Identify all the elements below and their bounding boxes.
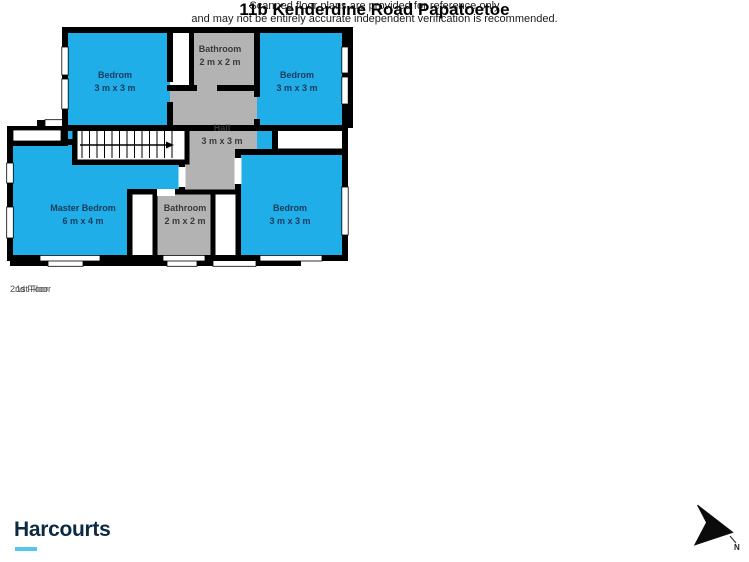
svg-text:3 m x 3 m: 3 m x 3 m (276, 83, 317, 93)
harcourts-logo: Harcourts (14, 518, 111, 542)
svg-text:Bathroom: Bathroom (199, 44, 242, 54)
svg-text:Hall: Hall (214, 123, 231, 133)
closet-bottom-left (130, 192, 155, 258)
disclaimer-line-2: and may not be entirely accurate indepen… (0, 13, 749, 26)
north-compass-icon: N (688, 505, 746, 555)
nook (276, 131, 342, 150)
floor-plan-sheet: Garage 6 m x 3 m Utility 2 m x 1 m W.c 2… (0, 0, 749, 562)
north-label: N (734, 543, 740, 552)
svg-text:3 m x 3 m: 3 m x 3 m (269, 216, 310, 226)
floor-label-2nd: 2nd Floor (10, 284, 48, 294)
disclaimer: Scanned floor plans are provided for ref… (0, 0, 749, 26)
svg-text:Bedrom: Bedrom (273, 203, 307, 213)
svg-text:2 m x 2 m: 2 m x 2 m (199, 57, 240, 67)
second-floor-plan: Bedrom 3 m x 3 m Bathroom 2 m x 2 m Bedr… (0, 0, 359, 300)
svg-text:2 m x 2 m: 2 m x 2 m (164, 216, 205, 226)
svg-text:3 m x 3 m: 3 m x 3 m (201, 136, 242, 146)
closet-bottom-right (213, 192, 238, 258)
disclaimer-line-1: Scanned floor plans are provided for ref… (0, 0, 749, 13)
svg-text:6 m x 4 m: 6 m x 4 m (62, 216, 103, 226)
svg-text:3 m x 3 m: 3 m x 3 m (94, 83, 135, 93)
closet-top (170, 30, 192, 88)
svg-text:Bathroom: Bathroom (164, 203, 207, 213)
svg-text:Bedrom: Bedrom (280, 70, 314, 80)
svg-text:Bedrom: Bedrom (98, 70, 132, 80)
harcourts-logo-underline (15, 547, 37, 551)
svg-text:Master Bedrom: Master Bedrom (50, 203, 116, 213)
